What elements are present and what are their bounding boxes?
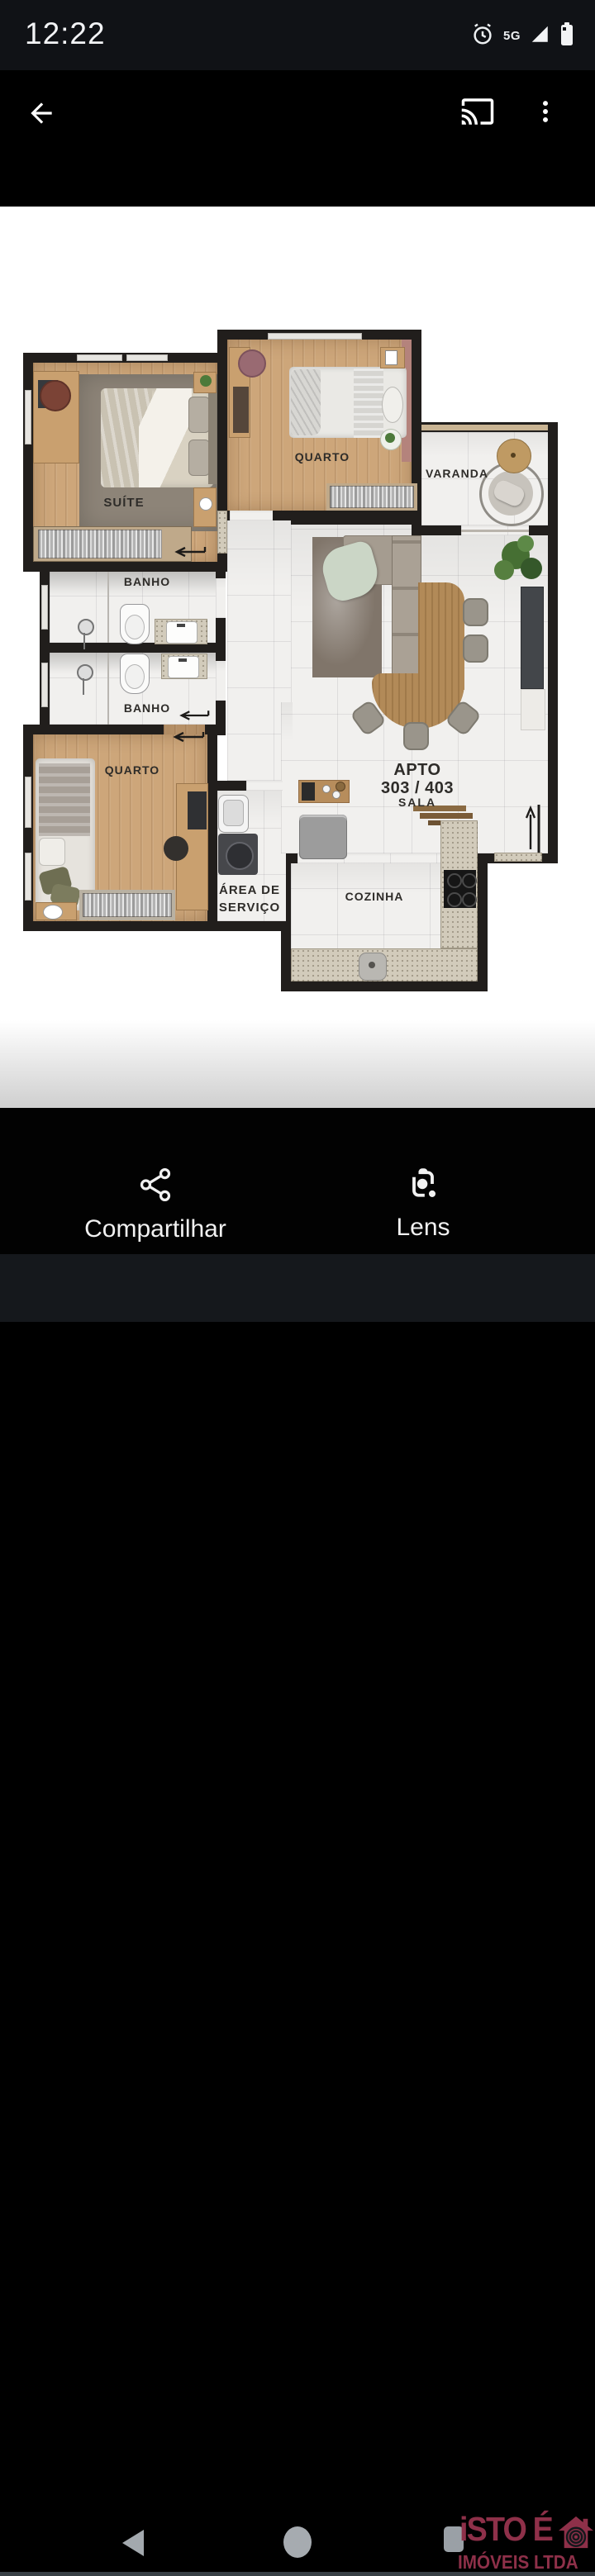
quarto-top-frame	[385, 350, 397, 365]
quarto-top-door	[230, 511, 273, 520]
burner-1	[447, 873, 462, 888]
dining-chair-2	[463, 634, 488, 663]
banho1-faucet	[177, 624, 185, 627]
lens-icon	[405, 1166, 441, 1202]
coffee-cup-2	[332, 791, 340, 799]
door-arrow-quarto-bottom	[170, 730, 207, 744]
watermark-subtitle-text: IMÓVEIS LTDA	[458, 2551, 584, 2574]
share-button[interactable]: Compartilhar	[56, 1115, 255, 1247]
suite-chair	[40, 380, 71, 411]
burner-4	[462, 892, 477, 907]
quarto-bottom-pillow-white	[39, 838, 65, 866]
quarto-bottom-window-1	[25, 777, 31, 828]
sala-tv-panel	[521, 587, 544, 689]
suite-sheet	[139, 388, 192, 487]
quarto-top-plant	[385, 433, 395, 443]
entry-door-arrow	[524, 803, 545, 854]
suite-pillow-1	[188, 397, 210, 433]
area-sink-basin	[223, 800, 244, 826]
screen-bottom-strip	[0, 2572, 595, 2576]
suite-lamp	[199, 497, 212, 511]
banho2-shower	[77, 664, 93, 681]
banho1-toilet	[120, 604, 150, 644]
watermark-brand-text: iSTO É	[459, 2510, 552, 2549]
room-label-quarto-bottom: QUARTO	[83, 763, 182, 778]
quarto-bottom-monitor	[188, 791, 207, 829]
coffee-cup-1	[322, 785, 331, 793]
quarto-top-pillow	[291, 369, 321, 435]
banho2-shower-hose	[83, 678, 84, 695]
room-label-banho1: BANHO	[98, 575, 197, 590]
banho1-window	[41, 585, 48, 630]
nav-back-button[interactable]	[122, 2530, 144, 2556]
area-servico-door	[246, 781, 283, 791]
sala-sofa	[392, 535, 421, 679]
banho1-door	[216, 578, 226, 618]
quarto-bottom-wardrobe-clothes	[83, 893, 172, 917]
share-icon	[136, 1166, 174, 1204]
varanda-railing	[421, 425, 548, 430]
quarto-top-window	[268, 333, 362, 340]
photo-bottom-fade	[0, 1020, 595, 1108]
watermark-logo: iSTO É IMÓVEIS LTDA	[453, 2510, 595, 2576]
banho1-shower	[78, 619, 94, 635]
banho1-shower-hose	[83, 633, 85, 649]
quarto-bottom-dresser-item	[43, 905, 63, 920]
suite-window-2	[126, 354, 168, 361]
varanda-door-glass	[461, 530, 529, 532]
suite-headboard	[208, 392, 217, 484]
lens-label: Lens	[396, 1214, 450, 1242]
quarto-top-blanket	[354, 367, 383, 438]
sala-tv-cabinet	[521, 689, 545, 730]
sala-plant-2	[521, 558, 542, 579]
quarto-bottom-window-2	[25, 853, 31, 901]
suite-plant	[200, 375, 212, 387]
photo-viewer[interactable]: SUÍTE QUARTO VARANDA BANHO BANHO	[0, 207, 595, 1108]
console-plank-2	[420, 813, 473, 819]
suite-door-threshold	[217, 511, 227, 554]
quarto-top-bolster	[382, 387, 403, 423]
share-label: Compartilhar	[84, 1215, 226, 1243]
coffee-bowl	[336, 782, 345, 791]
hall-sala-passage	[281, 702, 293, 853]
dining-chair-1	[463, 598, 488, 626]
suite-pillow-2	[188, 440, 210, 476]
lens-button[interactable]: Lens	[324, 1115, 522, 1247]
room-label-varanda: VARANDA	[407, 467, 507, 482]
suite-window-1	[77, 354, 122, 361]
quarto-bottom-chair	[164, 836, 188, 861]
action-bar: Compartilhar Lens	[0, 1108, 595, 1254]
suite-wardrobe-clothes	[38, 530, 162, 558]
nav-home-button[interactable]	[283, 2526, 312, 2558]
room-label-area-line2: SERVIÇO	[210, 901, 289, 916]
coffee-machine	[302, 782, 315, 801]
suite-window-left	[25, 390, 31, 444]
cozinha-fridge	[299, 815, 347, 859]
quarto-top-cabinet	[233, 387, 249, 433]
sala-plant-4	[517, 535, 534, 552]
sala-plant-3	[494, 560, 514, 580]
varanda-table-knob	[511, 453, 516, 458]
banho2-window	[41, 663, 48, 707]
banho2-faucet	[178, 658, 187, 662]
watermark-house-icon	[557, 2515, 595, 2550]
burner-2	[462, 873, 477, 888]
quarto-top-chair	[238, 349, 266, 378]
cozinha-sink-drain	[369, 962, 375, 968]
unit-label-line3: SALA	[368, 796, 467, 810]
burner-3	[447, 892, 462, 907]
room-label-suite: SUÍTE	[74, 496, 174, 511]
navigation-bar: iSTO É IMÓVEIS LTDA	[0, 1254, 595, 1322]
door-arrow-banho2	[177, 709, 212, 722]
room-label-area-line1: ÁREA DE	[210, 883, 289, 899]
room-label-cozinha: COZINHA	[325, 890, 424, 905]
room-label-quarto-top: QUARTO	[273, 450, 372, 465]
dining-chair-4	[403, 722, 429, 750]
banho2-door	[216, 661, 226, 701]
door-arrow-suite	[172, 545, 208, 558]
banho2-toilet	[120, 654, 150, 694]
area-washer-door	[226, 842, 254, 870]
quarto-top-wardrobe-clothes	[330, 486, 414, 508]
